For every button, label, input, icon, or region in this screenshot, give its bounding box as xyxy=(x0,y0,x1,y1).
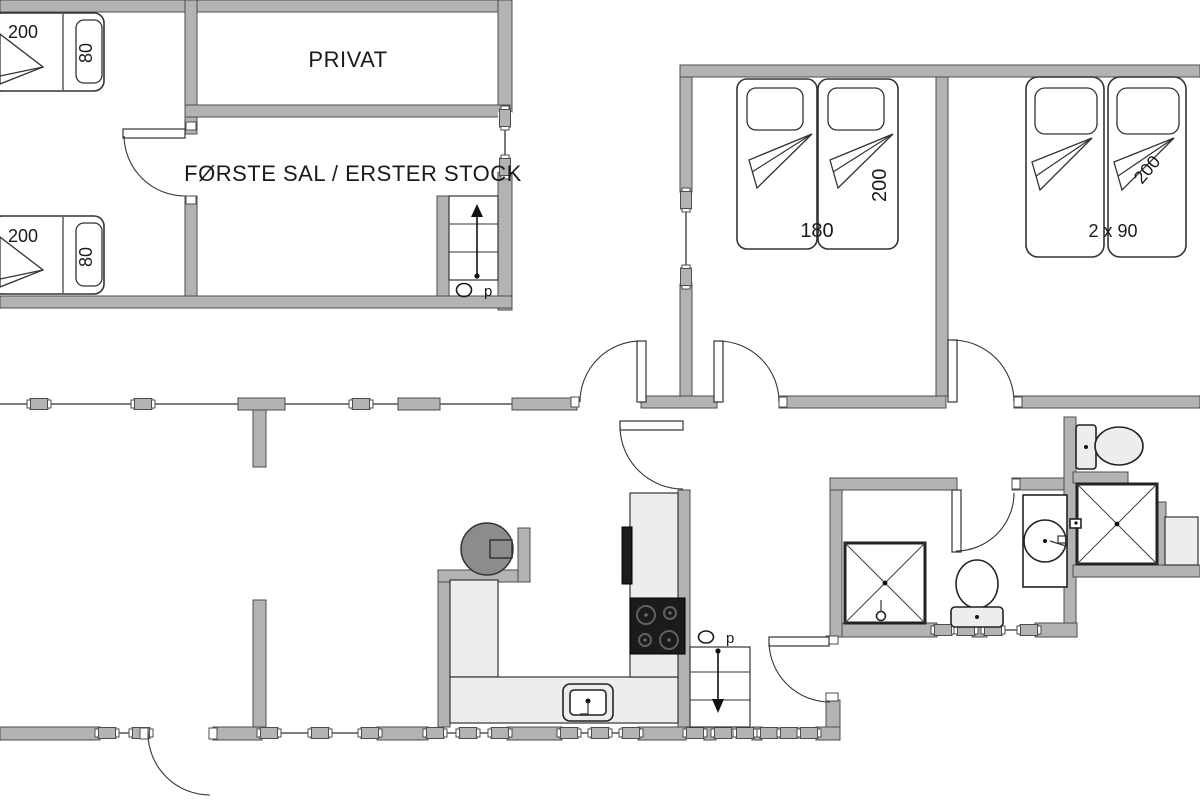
stairs-direction-label: p xyxy=(484,283,492,300)
shower-icon xyxy=(1070,484,1157,564)
bed-double-icon: 180 200 xyxy=(737,79,898,249)
washbasin-icon xyxy=(1023,495,1067,587)
window-icon xyxy=(680,188,692,289)
stairs-direction-label: p xyxy=(726,630,734,647)
door-livingroom-hall xyxy=(620,421,683,489)
door-bedroom-double xyxy=(714,341,787,407)
privat-room-label: PRIVAT xyxy=(308,47,387,72)
sink-icon xyxy=(563,684,613,721)
stairs-o-symbol xyxy=(457,284,472,297)
kitchen-area xyxy=(450,493,685,723)
bed-single-bottom-icon: 200 80 xyxy=(0,216,104,294)
bed-length-label: 200 xyxy=(8,22,38,42)
bed-size-label: 2 x 90 xyxy=(1088,221,1137,241)
wood-stove-icon xyxy=(461,523,513,575)
bed-width-label: 80 xyxy=(76,247,96,267)
bed-width-label: 80 xyxy=(76,43,96,63)
window-wall-north xyxy=(0,398,577,467)
ground-floor-plan: p xyxy=(0,65,1200,795)
door-main-entrance-south xyxy=(140,728,217,795)
door-bathroom xyxy=(952,479,1020,552)
door-bedroom-twins xyxy=(948,340,1022,407)
stairs-down-icon: p xyxy=(690,630,750,727)
oven-icon xyxy=(622,527,632,584)
kitchen-counter-left xyxy=(450,580,498,677)
cooktop-icon xyxy=(630,598,685,654)
floor-plan-page: p 200 80 200 80 PRIVAT FØRSTE SAL / ERST… xyxy=(0,0,1200,800)
bed-length-label: 200 xyxy=(869,169,891,202)
shower-icon xyxy=(845,543,925,623)
bed-twins-icon: 2 x 90 200 xyxy=(1026,77,1186,257)
bed-width-label: 180 xyxy=(800,220,833,242)
stairs-o-symbol xyxy=(699,631,714,643)
toilet-icon xyxy=(951,560,1003,627)
floor-plan-svg: p 200 80 200 80 PRIVAT FØRSTE SAL / ERST… xyxy=(0,0,1200,800)
first-floor-label: FØRSTE SAL / ERSTER STOCK xyxy=(184,161,522,186)
door-side-entrance-east xyxy=(769,636,838,702)
utility-counter xyxy=(1165,517,1198,565)
bed-length-label: 200 xyxy=(8,226,38,246)
stairs-up-icon: p xyxy=(449,196,498,300)
bed-single-top-icon: 200 80 xyxy=(0,13,104,91)
toilet-icon xyxy=(1076,425,1143,469)
window-wall-south xyxy=(0,727,840,740)
bathroom-right-wing xyxy=(1070,425,1198,565)
upper-floor-inset: p 200 80 200 80 PRIVAT FØRSTE SAL / ERST… xyxy=(0,0,522,310)
door-main-entrance-north xyxy=(571,341,646,407)
